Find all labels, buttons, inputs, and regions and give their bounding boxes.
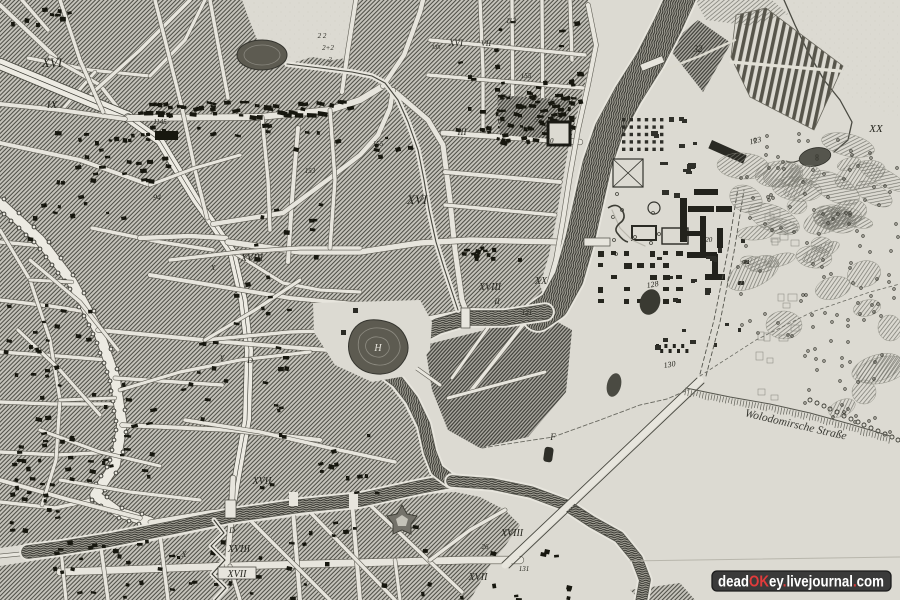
- svg-text:153: 153: [305, 167, 316, 175]
- svg-text:XVIII: XVIII: [227, 544, 251, 555]
- svg-text:II: II: [493, 297, 500, 306]
- svg-text:XVIII: XVIII: [478, 282, 502, 293]
- svg-text:94: 94: [153, 193, 161, 202]
- svg-text:VII: VII: [481, 39, 492, 48]
- svg-text:IX: IX: [46, 99, 59, 111]
- svg-text:26: 26: [482, 543, 490, 551]
- svg-text:H: H: [373, 343, 382, 354]
- svg-text:1145: 1145: [153, 118, 167, 126]
- svg-text:XVII: XVII: [227, 569, 248, 580]
- svg-text:50: 50: [547, 137, 555, 145]
- svg-text:135: 135: [432, 45, 441, 51]
- svg-text:32: 32: [693, 44, 704, 54]
- svg-text:XVI: XVI: [41, 55, 63, 70]
- svg-text:X: X: [210, 264, 216, 272]
- svg-text:131: 131: [519, 565, 530, 573]
- svg-text:XVII: XVII: [468, 572, 489, 583]
- svg-text:2+2: 2+2: [322, 44, 334, 52]
- svg-text:112: 112: [506, 17, 516, 25]
- svg-text:XVIII: XVIII: [240, 253, 264, 264]
- svg-text:XVI: XVI: [448, 38, 464, 48]
- svg-text:120: 120: [702, 236, 713, 244]
- svg-text:55: 55: [535, 116, 543, 124]
- svg-text:D: D: [246, 356, 253, 365]
- svg-text:155: 155: [373, 140, 384, 148]
- svg-text:D: D: [228, 526, 235, 535]
- svg-text:deadOKey.livejournal.com: deadOKey.livejournal.com: [718, 574, 884, 591]
- svg-text:XX: XX: [868, 123, 884, 135]
- svg-text:F: F: [549, 432, 556, 442]
- svg-text:III: III: [457, 127, 468, 137]
- svg-text:2: 2: [328, 56, 332, 64]
- svg-text:XVII: XVII: [252, 476, 273, 487]
- svg-text:XVI: XVI: [406, 192, 428, 207]
- svg-text:155: 155: [521, 72, 532, 80]
- svg-text:XX: XX: [534, 276, 548, 287]
- svg-text:2 2: 2 2: [318, 32, 327, 40]
- svg-text:XVIII: XVIII: [500, 528, 524, 539]
- svg-text:121: 121: [522, 309, 533, 317]
